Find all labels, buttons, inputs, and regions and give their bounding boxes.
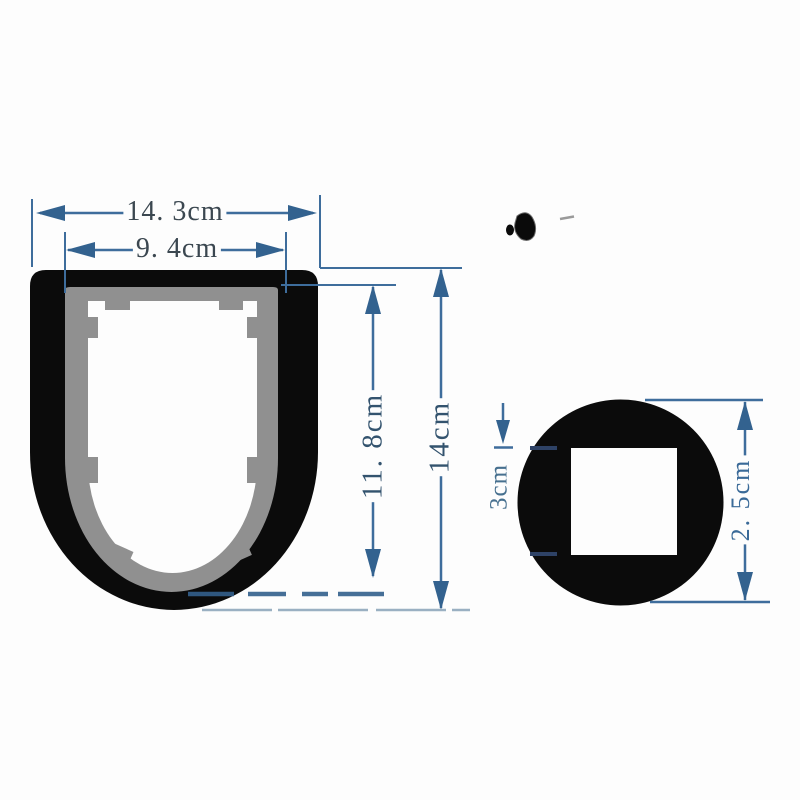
diagram-drawing <box>0 0 800 800</box>
ink-smudge <box>506 213 574 241</box>
round-profile-shape <box>518 400 724 606</box>
round-profile-square-hole <box>571 448 677 555</box>
inner-width-label: 9. 4cm <box>133 234 221 264</box>
square-hole-label: 3cm <box>486 461 513 513</box>
outer-height-label: 14cm <box>425 398 456 476</box>
u-profile-shape <box>30 270 318 610</box>
square-hole-dimension <box>494 403 513 448</box>
u-profile-cavity <box>88 301 257 573</box>
inner-height-label: 11. 8cm <box>358 390 389 502</box>
outer-width-label: 14. 3cm <box>123 197 226 227</box>
diagram-canvas: 14. 3cm 9. 4cm 11. 8cm 14cm 3cm 2. 5cm <box>0 0 800 800</box>
cap-height-label: 2. 5cm <box>727 456 755 545</box>
